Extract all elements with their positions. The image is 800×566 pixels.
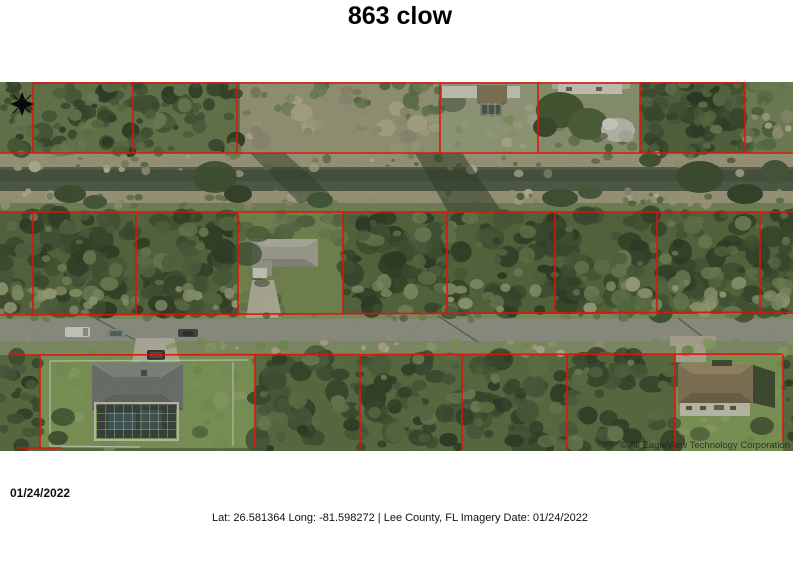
footer-caption: Lat: 26.581364 Long: -81.598272 | Lee Co… <box>0 512 800 524</box>
aerial-map: © All EagleView Technology Corporation <box>0 82 793 451</box>
imagery-date: 01/24/2022 <box>10 486 70 500</box>
page-title: 863 clow <box>0 2 800 31</box>
report-page: 863 clow <box>0 0 800 566</box>
north-arrow-icon <box>10 92 34 116</box>
watermark: © All EagleView Technology Corporation <box>620 440 790 451</box>
